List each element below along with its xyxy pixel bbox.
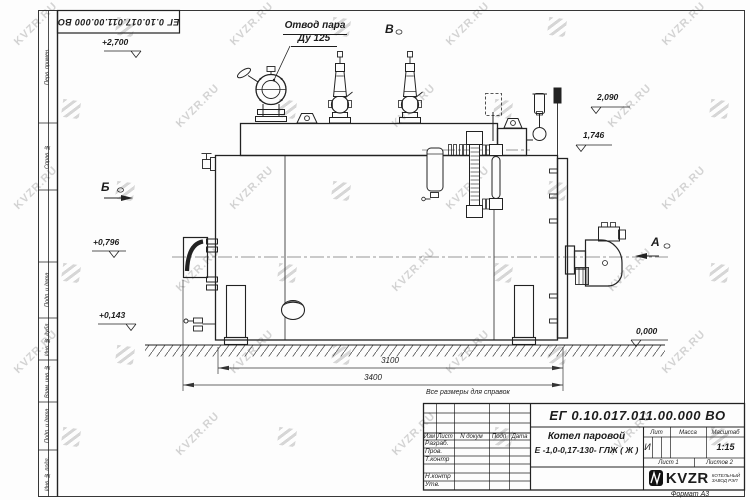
callout-steam-outlet-size: Ду 125 — [291, 34, 337, 47]
col-podp: Подп — [489, 433, 509, 441]
role-razrab: Разраб. — [425, 441, 449, 448]
safety-valve-2 — [399, 52, 423, 124]
format-label: Формат А3 — [650, 490, 730, 498]
elevation-marks — [92, 51, 668, 347]
scale-value: 1:15 — [706, 437, 745, 458]
spring-icon — [649, 470, 663, 486]
elevation-0796: +0,796 — [93, 238, 119, 247]
ground-line — [145, 345, 665, 357]
reference-note: Все размеры для справок — [426, 389, 510, 396]
shell-seams — [285, 156, 494, 340]
dimension-3400: 3400 — [343, 374, 403, 382]
safety-valve-1 — [329, 52, 353, 124]
company-logo: KVZR КОТЕЛЬНЫЙ ЗАВОД РЭП — [645, 467, 744, 489]
elevation-1746: 1,746 — [583, 131, 604, 140]
view-marker-a: А — [651, 236, 660, 248]
margin-field-podp-data-1: Подп. и дата — [38, 262, 57, 318]
lifting-lug — [297, 114, 317, 124]
view-marker-b: Б — [101, 181, 110, 193]
wall-valve — [202, 154, 216, 171]
logo-brand: KVZR — [666, 471, 709, 486]
lit-header: Лит — [643, 428, 670, 437]
sheets-total: Листов 2 — [694, 458, 745, 467]
product-name: Котел паровой — [530, 429, 643, 444]
view-marker-v: В — [385, 23, 394, 35]
margin-field-vzam-inv: Взам. инв. № — [38, 360, 57, 402]
support-legs — [225, 286, 536, 345]
end-plate-bolts — [550, 169, 558, 323]
manhole — [282, 301, 305, 320]
sheet-number: Лист 1 — [643, 458, 694, 467]
mass-header: Масса — [670, 428, 706, 437]
drawing-sheet: KVZR.RUKVZR.RUKVZR.RUKVZR.RUKVZR.RUKVZR.… — [0, 0, 750, 500]
col-dokum: N докум — [454, 433, 489, 441]
role-prov: Пров. — [425, 449, 442, 456]
logo-sub2: ЗАВОД РЭП — [712, 478, 740, 483]
elevation-2700: +2,700 — [102, 38, 128, 47]
product-designation: Е -1,0-0,17-130- ГЛЖ ( Ж ) — [530, 444, 643, 457]
role-tkontr: Т.контр — [425, 457, 449, 464]
elevation-0000: 0,000 — [636, 327, 657, 336]
rear-elbow — [184, 238, 218, 291]
phantom-item — [486, 94, 502, 142]
col-data: Дата — [509, 433, 530, 441]
drain-valve — [184, 318, 215, 331]
view-arrows — [104, 30, 670, 259]
scale-header: Масштаб — [706, 428, 745, 437]
pressure-gauge-siphon — [527, 88, 562, 158]
role-nkontr: Н.контр — [425, 474, 451, 481]
lit-value: И — [643, 437, 652, 458]
top-left-stamp: ЕГ 0.10.017.011.00.000 ВО — [57, 10, 180, 33]
dimension-3100: 3100 — [360, 357, 420, 365]
elevation-2090: 2,090 — [597, 93, 618, 102]
water-level-gauges — [422, 132, 530, 218]
doc-number: ЕГ 0.10.017.011.00.000 ВО — [530, 403, 745, 427]
burner-assembly — [566, 223, 626, 287]
margin-field-inv-podl: Инв. № подл. — [38, 450, 57, 497]
elevation-0143: +0,143 — [99, 311, 125, 320]
main-steam-valve — [236, 66, 286, 121]
role-utv: Утв. — [425, 482, 440, 489]
margin-field-podp-data-2: Подп. и дата — [38, 402, 57, 450]
margin-field-sprav-no: Справ. № — [38, 123, 57, 190]
lifting-lug-2 — [504, 119, 522, 129]
margin-field-perv-primen: Перв. примен. — [38, 10, 57, 123]
margin-field-inv-dubl: Инв. № дубл. — [38, 318, 57, 360]
